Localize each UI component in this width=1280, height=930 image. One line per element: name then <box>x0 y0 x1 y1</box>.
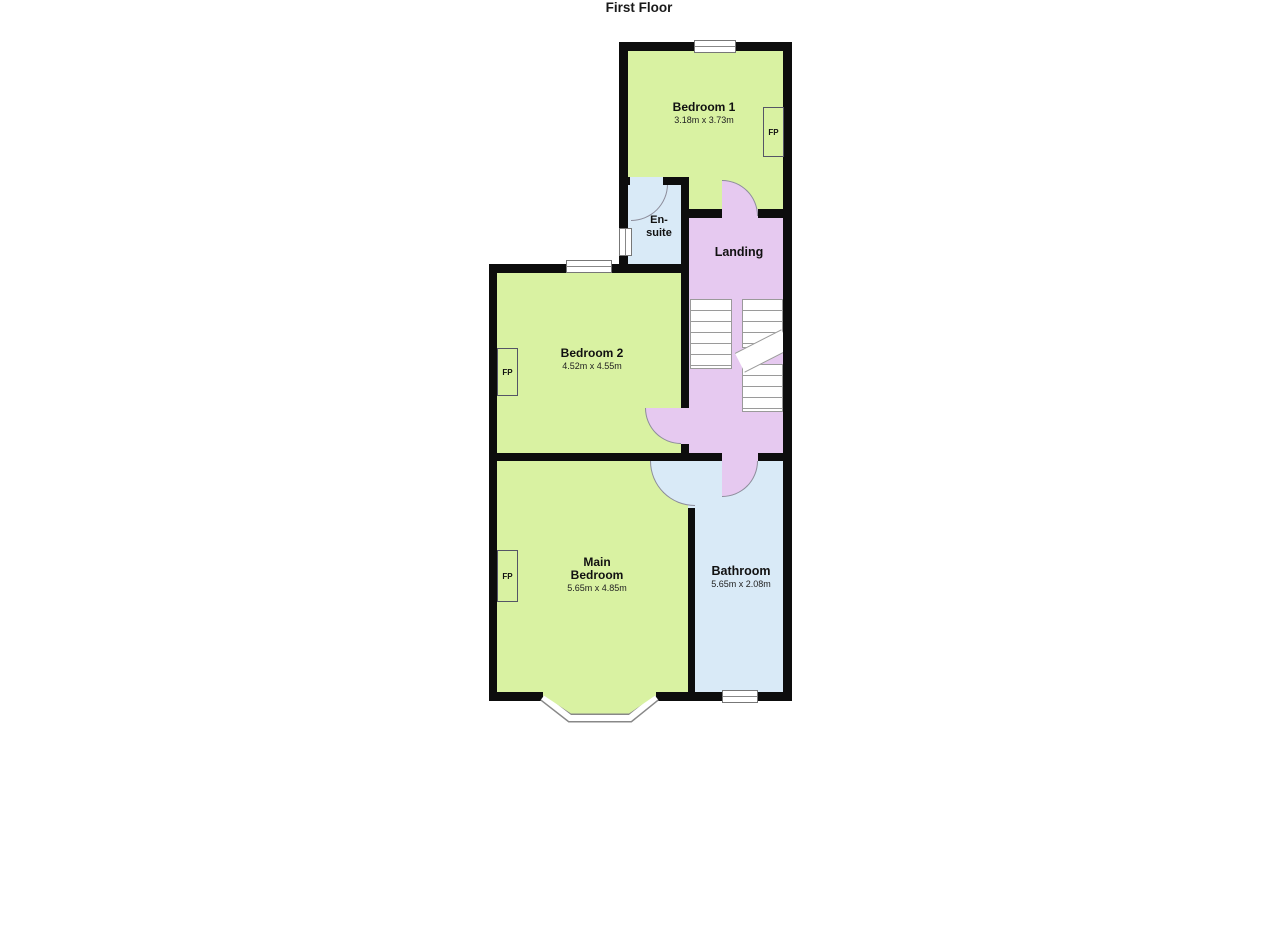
bedroom-1-label: Bedroom 1 3.18m x 3.73m <box>673 101 736 127</box>
wall <box>783 42 792 701</box>
wall <box>489 453 722 461</box>
fireplace-icon: FP <box>497 348 518 396</box>
wall <box>681 177 689 408</box>
room-dims: 5.65m x 2.08m <box>711 578 771 591</box>
en-suite-label: En- suite <box>646 214 672 240</box>
room-name: Bedroom 1 <box>673 101 736 114</box>
bedroom-2-label: Bedroom 2 4.52m x 4.55m <box>561 347 624 373</box>
room-name: suite <box>646 227 672 240</box>
room-dims: 4.52m x 4.55m <box>561 360 624 373</box>
wall <box>688 508 695 692</box>
staircase-right-lower-flight <box>742 364 783 412</box>
room-name: Bedroom 2 <box>561 347 624 360</box>
bay-window <box>480 688 700 730</box>
room-dims: 3.18m x 3.73m <box>673 114 736 127</box>
floor-title: First Floor <box>606 0 673 15</box>
room-name: Landing <box>715 246 764 259</box>
wall <box>758 453 792 461</box>
room-name: En- <box>646 214 672 227</box>
wall <box>619 177 630 185</box>
fireplace-label: FP <box>768 128 778 137</box>
fireplace-label: FP <box>502 572 512 581</box>
fireplace-icon: FP <box>497 550 518 602</box>
room-name: Bedroom <box>567 569 627 582</box>
window-bathroom <box>722 690 758 703</box>
wall <box>758 209 783 218</box>
wall <box>489 264 497 701</box>
window-bedroom-1 <box>694 40 736 53</box>
window-en-suite <box>619 228 632 256</box>
staircase-left-flight <box>690 299 732 369</box>
wall <box>612 264 689 273</box>
room-name: Bathroom <box>711 565 771 578</box>
bathroom-label: Bathroom 5.65m x 2.08m <box>711 565 771 591</box>
window-bedroom-2 <box>566 260 612 273</box>
fireplace-icon: FP <box>763 107 784 157</box>
room-dims: 5.65m x 4.85m <box>567 582 627 595</box>
wall <box>489 264 566 273</box>
main-bedroom-label: Main Bedroom 5.65m x 4.85m <box>567 556 627 595</box>
floorplan-page: First Floor <box>0 0 1280 930</box>
doorway-bedroom-2 <box>681 408 689 444</box>
landing-label: Landing <box>715 246 764 259</box>
fireplace-label: FP <box>502 368 512 377</box>
